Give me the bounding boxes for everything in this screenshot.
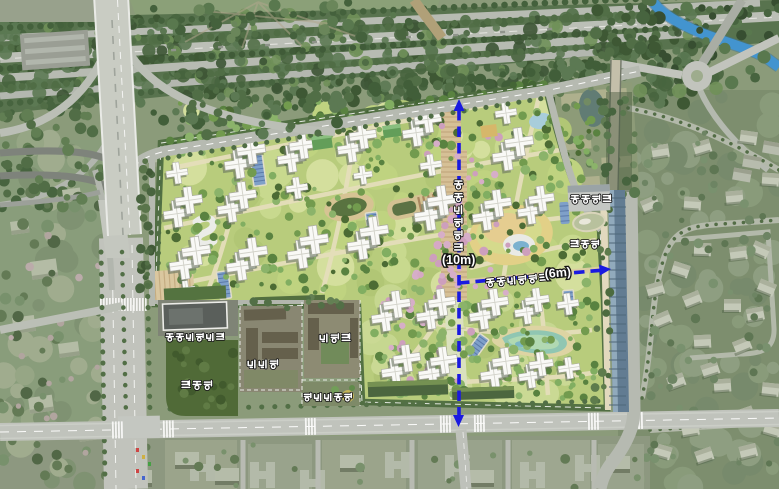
svg-text:(10m): (10m) [442, 253, 475, 267]
svg-text:(6m): (6m) [544, 265, 572, 281]
